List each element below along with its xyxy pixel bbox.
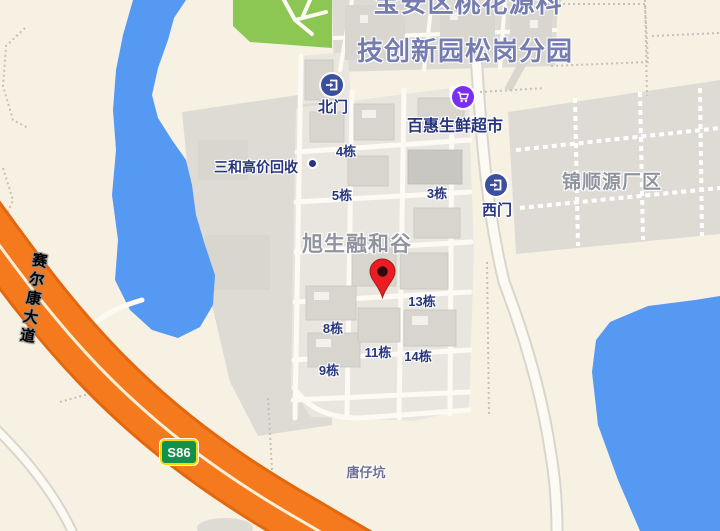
pond-name-label: 唐仔坑 bbox=[346, 462, 385, 481]
west-gate-label[interactable]: 西门 bbox=[482, 199, 512, 220]
building-label-14: 14栋 bbox=[404, 346, 431, 365]
water-lake bbox=[592, 296, 720, 531]
map-canvas[interactable]: 宝安区桃花源科 技创新园松岗分园 北门 百惠生鲜超市 西门 三和高价回收 旭生融… bbox=[0, 0, 720, 531]
building-label-4: 4栋 bbox=[336, 141, 356, 160]
factory-name-label: 锦顺源厂区 bbox=[562, 167, 662, 194]
west-gate-icon[interactable] bbox=[485, 174, 507, 196]
building-label-8: 8栋 bbox=[323, 318, 343, 337]
building-label-3: 3栋 bbox=[427, 183, 447, 202]
north-gate-label[interactable]: 北门 bbox=[318, 96, 348, 117]
map-terrain-layer bbox=[0, 0, 720, 531]
shopping-cart-glyph bbox=[456, 90, 470, 104]
building-label-9: 9栋 bbox=[319, 360, 339, 379]
estate-name-label[interactable]: 旭生融和谷 bbox=[302, 228, 412, 258]
science-park-label-line2: 技创新园松岗分园 bbox=[357, 31, 573, 68]
gate-glyph bbox=[325, 78, 339, 92]
supermarket-label[interactable]: 百惠生鲜超市 bbox=[407, 112, 503, 136]
building-label-5: 5栋 bbox=[332, 185, 352, 204]
recycle-shop-poi-dot[interactable] bbox=[309, 160, 316, 167]
highway-badge: S86 bbox=[160, 439, 198, 465]
supermarket-icon[interactable] bbox=[452, 86, 474, 108]
location-pin[interactable] bbox=[369, 258, 396, 299]
building-label-11: 11栋 bbox=[365, 342, 392, 361]
gate-glyph bbox=[489, 178, 503, 192]
north-gate-icon[interactable] bbox=[321, 74, 343, 96]
park-area bbox=[233, 0, 332, 48]
building-label-13: 13栋 bbox=[408, 291, 435, 310]
recycle-shop-label[interactable]: 三和高价回收 bbox=[214, 157, 298, 177]
science-park-label-line1: 宝安区桃花源科 bbox=[373, 0, 562, 20]
